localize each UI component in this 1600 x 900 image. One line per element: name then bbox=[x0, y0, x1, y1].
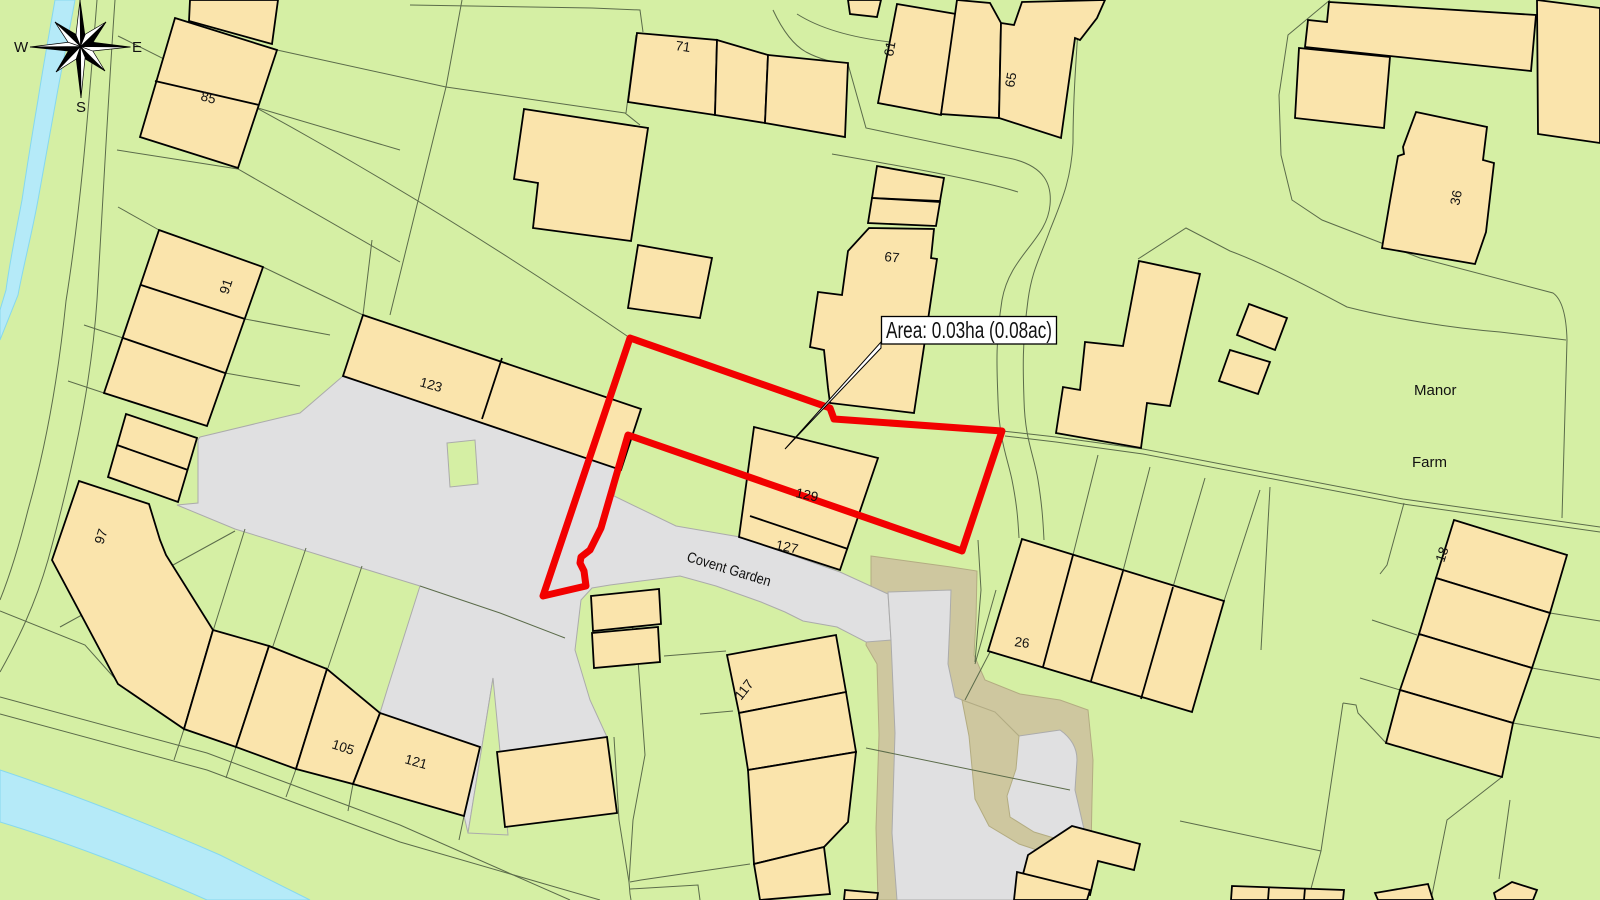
svg-text:W: W bbox=[14, 39, 29, 56]
svg-text:Area: 0.03ha (0.08ac): Area: 0.03ha (0.08ac) bbox=[886, 317, 1052, 343]
svg-text:71: 71 bbox=[675, 38, 692, 55]
svg-text:Manor: Manor bbox=[1414, 382, 1457, 399]
svg-text:26: 26 bbox=[1014, 634, 1031, 651]
svg-text:36: 36 bbox=[1447, 189, 1465, 207]
svg-text:S: S bbox=[76, 99, 86, 116]
svg-text:E: E bbox=[132, 39, 142, 56]
svg-text:67: 67 bbox=[884, 249, 901, 265]
svg-text:Farm: Farm bbox=[1412, 454, 1447, 471]
svg-text:65: 65 bbox=[1002, 71, 1019, 88]
svg-text:61: 61 bbox=[881, 40, 898, 57]
